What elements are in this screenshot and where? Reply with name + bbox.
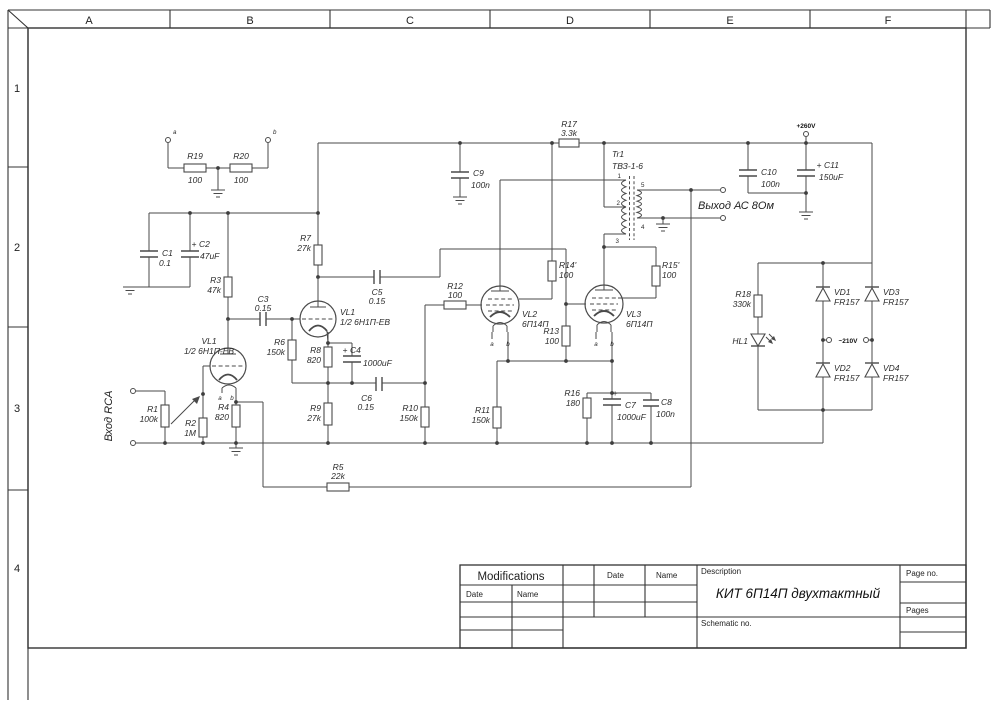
resistor-r5: R5 22k — [327, 462, 349, 491]
vl3-pin-b: b — [610, 341, 614, 348]
r15-value: 100 — [662, 270, 676, 280]
capacitor-c3: C3 0.15 — [255, 294, 272, 326]
c7-label: C7 — [625, 400, 636, 410]
r8-value: 820 — [307, 355, 321, 365]
output-label: Выход АС 8Ом — [698, 200, 774, 212]
r10-label: R10 — [402, 403, 418, 413]
terminal-b-label: b — [273, 129, 277, 136]
c2-plus: + — [192, 239, 197, 249]
resistor-r2: R2 1M — [184, 418, 207, 438]
capacitor-c11: + C11 150uF — [797, 160, 844, 182]
tb-date-label: Date — [466, 590, 483, 599]
grid-col-f: F — [885, 15, 892, 27]
resistor-r20: R20 100 — [230, 151, 252, 185]
c6-value: 0.15 — [357, 402, 374, 412]
r14-label: R14' — [559, 260, 577, 270]
tb-schematic-no: Schematic no. — [701, 619, 752, 628]
c1-label: C1 — [162, 248, 173, 258]
resistor-r8: R8 820 — [307, 345, 332, 367]
vl2-type: 6П14П — [522, 319, 549, 329]
grid-col-a: A — [85, 15, 93, 27]
grid-col-e: E — [726, 15, 733, 27]
c2-value: 47uF — [200, 251, 220, 261]
r16-label: R16 — [564, 388, 580, 398]
secondary-winding — [637, 190, 642, 218]
tr1-tap-5: 5 — [641, 182, 645, 189]
vl1a-pin-a: a — [218, 395, 222, 402]
input-label: Вход RCA — [103, 391, 115, 442]
title-block: Modifications Date Name Date Name Descri… — [460, 565, 966, 648]
r7-label: R7 — [300, 233, 311, 243]
tr1-type: ТВЗ-1-6 — [612, 161, 643, 171]
resistor-r6: R6 150k — [267, 337, 296, 360]
r14-value: 100 — [559, 270, 573, 280]
ac-terminal-1 — [827, 338, 832, 343]
c3-value: 0.15 — [255, 303, 272, 313]
capacitor-c1: C1 0.1 — [140, 248, 173, 268]
capacitor-c10: C10 100n — [739, 167, 780, 189]
grid-col-b: B — [246, 15, 253, 27]
power-terminal: +260V — [797, 123, 817, 137]
r1-label: R1 — [147, 404, 158, 414]
resistor-r17: R17 3.3k — [559, 119, 579, 147]
vd2-label: VD2 — [834, 363, 851, 373]
grid-row-3: 3 — [14, 403, 20, 415]
c2-label: C2 — [199, 239, 210, 249]
c4-plus: + — [343, 345, 348, 355]
r12-value: 100 — [448, 290, 462, 300]
c11-value: 150uF — [819, 172, 844, 182]
tb-description: КИТ 6П14П двухтактный — [716, 586, 881, 601]
grid-row-4: 4 — [14, 563, 20, 575]
vl3-pin-a: a — [594, 341, 598, 348]
tr1-tap-2: 2 — [617, 200, 621, 207]
c10-label: C10 — [761, 167, 777, 177]
tr1-tap-4: 4 — [641, 224, 645, 231]
c9-value: 100n — [471, 180, 490, 190]
r4-label: R4 — [218, 402, 229, 412]
output-terminal-2 — [721, 216, 726, 221]
resistor-r19: R19 100 — [184, 151, 206, 185]
r20-label: R20 — [233, 151, 249, 161]
r3-label: R3 — [210, 275, 221, 285]
vd2-value: FR157 — [834, 373, 860, 383]
tb-name-label: Name — [517, 590, 539, 599]
ac-terminals: ~210V — [827, 338, 869, 346]
grid-col-d: D — [566, 15, 574, 27]
vd1-label: VD1 — [834, 287, 851, 297]
r20-value: 100 — [234, 175, 248, 185]
input-terminal-1 — [131, 389, 136, 394]
input-terminals: Вход RCA — [103, 389, 136, 446]
vd1-value: FR157 — [834, 297, 860, 307]
r10-value: 150k — [400, 413, 419, 423]
terminal-b — [266, 138, 271, 143]
tr1-label: Tr1 — [612, 149, 624, 159]
output-terminals: Выход АС 8Ом — [698, 188, 774, 221]
r2-label: R2 — [185, 418, 196, 428]
capacitor-c6: C6 0.15 — [357, 377, 382, 412]
vl1a-type: 1/2 6Н1П-ЕВ — [184, 346, 234, 356]
c7-plus: + — [613, 388, 618, 398]
tb-pages: Pages — [906, 606, 929, 615]
c8-label: C8 — [661, 397, 672, 407]
c9-label: C9 — [473, 168, 484, 178]
r15-label: R15' — [662, 260, 680, 270]
resistor-r10: R10 150k — [400, 403, 429, 427]
capacitor-c5: C5 0.15 — [369, 270, 386, 306]
tb-modifications: Modifications — [477, 571, 544, 583]
capacitor-c9: C9 100n — [451, 168, 490, 190]
terminal-a-label: a — [173, 129, 177, 136]
c4-label: C4 — [350, 345, 361, 355]
grid-row-1: 1 — [14, 83, 20, 95]
r13-value: 100 — [545, 336, 559, 346]
r16-value: 180 — [566, 398, 580, 408]
r6-value: 150k — [267, 347, 286, 357]
capacitor-c2: + C2 47uF — [181, 239, 220, 261]
tb-name2-label: Name — [656, 571, 678, 580]
terminal-a — [166, 138, 171, 143]
resistor-r9: R9 27k — [306, 403, 332, 425]
c8-value: 100n — [656, 409, 675, 419]
r18-label: R18 — [735, 289, 751, 299]
input-terminal-2 — [131, 441, 136, 446]
r18-value: 330k — [733, 299, 752, 309]
vd4-label: VD4 — [883, 363, 900, 373]
heater-terminals: a b — [166, 129, 278, 143]
r9-label: R9 — [310, 403, 321, 413]
tb-date2-label: Date — [607, 571, 624, 580]
r9-value: 27k — [306, 413, 321, 423]
tr1-tap-1: 1 — [618, 173, 622, 180]
schematic-canvas: A B C D E F 1 2 3 4 — [0, 0, 1000, 708]
tube-vl2: VL2 6П14П a b — [481, 286, 549, 348]
r19-label: R19 — [187, 151, 203, 161]
led-hl1: HL1 — [732, 334, 776, 346]
resistor-r11: R11 150k — [472, 405, 501, 428]
resistor-r12: R12 100 — [444, 281, 466, 309]
r1-value: 100k — [140, 414, 159, 424]
resistor-r3: R3 47k — [207, 275, 232, 297]
vd4-value: FR157 — [883, 373, 909, 383]
r5-value: 22k — [330, 471, 345, 481]
capacitor-c4: + C4 1000uF — [343, 345, 393, 368]
drawing-sheet: A B C D E F 1 2 3 4 — [0, 0, 1000, 708]
tr1-tap-3: 3 — [616, 238, 620, 245]
c10-value: 100n — [761, 179, 780, 189]
tube-vl1a: VL1 1/2 6Н1П-ЕВ a b — [184, 319, 246, 402]
r19-value: 100 — [188, 175, 202, 185]
b-plus-label: +260V — [797, 123, 817, 130]
output-terminal-1 — [721, 188, 726, 193]
vl2-pin-b: b — [506, 341, 510, 348]
resistor-r13: R13 100 — [543, 326, 570, 346]
vl1b-type: 1/2 6Н1П-ЕВ — [340, 317, 390, 327]
r6-label: R6 — [274, 337, 285, 347]
grid-col-c: C — [406, 15, 414, 27]
r3-value: 47k — [207, 285, 221, 295]
capacitor-c8: C8 100n — [643, 397, 675, 419]
vl1b-label: VL1 — [340, 307, 355, 317]
c5-value: 0.15 — [369, 296, 386, 306]
transformer-tr1: Tr1 ТВЗ-1-6 1 2 3 5 4 — [612, 149, 645, 245]
resistor-r14: R14' 100 — [548, 260, 577, 281]
grid-row-2: 2 — [14, 242, 20, 254]
vd3-label: VD3 — [883, 287, 900, 297]
vl1a-label: VL1 — [201, 336, 216, 346]
vd3-value: FR157 — [883, 297, 909, 307]
potentiometer-wiper-arrow — [192, 396, 200, 404]
r17-value: 3.3k — [561, 128, 578, 138]
vl2-pin-a: a — [490, 341, 494, 348]
c4-value: 1000uF — [363, 358, 393, 368]
vl1a-pin-b: b — [230, 395, 234, 402]
ac-voltage-label: ~210V — [839, 338, 859, 345]
r11-label: R11 — [475, 405, 490, 415]
r7-value: 27k — [296, 243, 311, 253]
c11-label: C11 — [824, 160, 839, 170]
r2-value: 1M — [184, 428, 197, 438]
vl3-type: 6П14П — [626, 319, 653, 329]
vl2-label: VL2 — [522, 309, 537, 319]
ac-terminal-2 — [864, 338, 869, 343]
tb-description-label: Description — [701, 567, 741, 576]
primary-winding-bottom — [622, 207, 627, 234]
hl1-label: HL1 — [732, 336, 748, 346]
vl3-label: VL3 — [626, 309, 641, 319]
b-plus-terminal — [804, 132, 809, 137]
tb-page-no: Page no. — [906, 569, 938, 578]
c11-plus: + — [817, 160, 822, 170]
r4-value: 820 — [215, 412, 229, 422]
tube-vl3: VL3 6П14П a b — [585, 285, 653, 348]
primary-winding-top — [622, 180, 627, 207]
resistor-r4: R4 820 — [215, 402, 240, 427]
r11-value: 150k — [472, 415, 491, 425]
c1-value: 0.1 — [159, 258, 171, 268]
r8-label: R8 — [310, 345, 321, 355]
c7-value: 1000uF — [617, 412, 647, 422]
